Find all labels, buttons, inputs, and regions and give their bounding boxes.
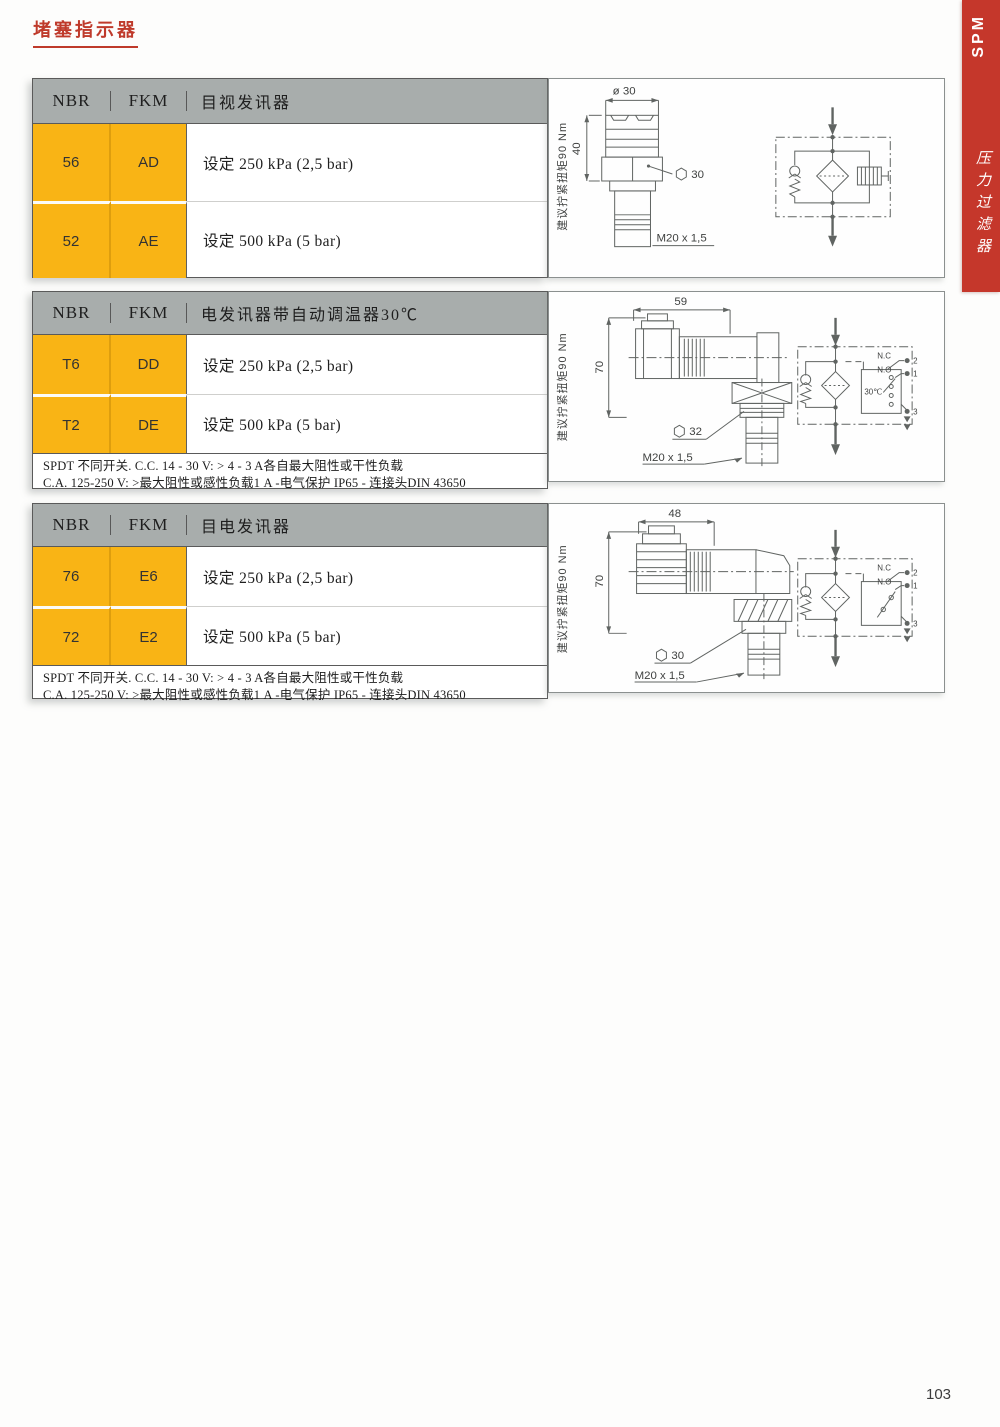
terminal-3-label: 3	[913, 619, 918, 628]
technical-drawing-electric-indicator: 建议拧紧扭矩90 Nm 59 70 32 M20 x 1,5 30℃ N.C N…	[549, 292, 944, 481]
side-tab-code: SPM	[970, 14, 988, 58]
cell-desc: 设定 500 kPa (5 bar)	[187, 606, 547, 665]
terminal-no-label: N.O	[877, 366, 891, 375]
terminal-3-label: 3	[913, 407, 918, 416]
cell-fkm: AD	[111, 124, 187, 201]
drawing-panel-visual-indicator: 建议拧紧扭矩90 Nm ø 30 40 30 M20 x 1,5	[548, 78, 945, 278]
col-header-fkm: FKM	[111, 91, 187, 111]
torque-label: 建议拧紧扭矩90 Nm	[555, 332, 569, 441]
hex-symbol	[674, 425, 684, 437]
terminal-nc-label: N.C	[877, 352, 891, 361]
side-tab-label: 压力过滤器	[972, 150, 993, 260]
cell-desc: 设定 250 kPa (2,5 bar)	[187, 547, 547, 606]
table-row: 72 E2 设定 500 kPa (5 bar)	[33, 606, 547, 665]
technical-drawing-visual-electric-indicator: 建议拧紧扭矩90 Nm 48 70 30 M20 x 1,5 N.C N.O 2…	[549, 504, 944, 692]
table-row: T6 DD 设定 250 kPa (2,5 bar)	[33, 335, 547, 394]
cell-nbr: 76	[33, 547, 111, 606]
page-number: 103	[926, 1386, 951, 1403]
spec-note-line1: SPDT 不同开关. C.C. 14 - 30 V: > 4 - 3 A各自最大…	[43, 670, 537, 687]
terminal-1-label: 1	[913, 582, 918, 591]
torque-label: 建议拧紧扭矩90 Nm	[555, 122, 569, 231]
col-header-type: 目视发讯器	[187, 89, 547, 113]
table-header-row: NBR FKM 目视发讯器	[33, 79, 547, 124]
dim-width-label: 59	[674, 296, 687, 308]
cell-nbr: T6	[33, 335, 111, 394]
torque-label: 建议拧紧扭矩90 Nm	[555, 544, 569, 653]
table-row: 52 AE 设定 500 kPa (5 bar)	[33, 201, 547, 278]
thermostat-label: 30℃	[864, 387, 882, 396]
spec-note-line2: C.A. 125-250 V: >最大阻性或感性负载1 A -电气保护 IP65…	[43, 475, 537, 492]
dim-height-label: 40	[571, 142, 583, 155]
drawing-panel-visual-electric-indicator: 建议拧紧扭矩90 Nm 48 70 30 M20 x 1,5 N.C N.O 2…	[548, 503, 945, 693]
table-electric-indicator-thermostat: NBR FKM 电发讯器带自动调温器30℃ T6 DD 设定 250 kPa (…	[32, 291, 548, 489]
thread-label: M20 x 1,5	[643, 452, 693, 464]
table-row: 76 E6 设定 250 kPa (2,5 bar)	[33, 547, 547, 606]
spec-note-line2: C.A. 125-250 V: >最大阻性或感性负载1 A -电气保护 IP65…	[43, 687, 537, 704]
dim-diameter-label: ø 30	[613, 85, 636, 97]
terminal-2-label: 2	[913, 569, 918, 578]
technical-drawing-visual-indicator: 建议拧紧扭矩90 Nm ø 30 40 30 M20 x 1,5	[549, 79, 944, 277]
terminal-1-label: 1	[913, 370, 918, 379]
spec-note-line1: SPDT 不同开关. C.C. 14 - 30 V: > 4 - 3 A各自最大…	[43, 458, 537, 475]
col-header-nbr: NBR	[33, 303, 111, 323]
table-row: T2 DE 设定 500 kPa (5 bar)	[33, 394, 547, 453]
col-header-type: 电发讯器带自动调温器30℃	[187, 301, 547, 325]
cell-desc: 设定 500 kPa (5 bar)	[187, 201, 547, 278]
col-header-nbr: NBR	[33, 515, 111, 535]
cell-nbr: 56	[33, 124, 111, 201]
hex-size-label: 32	[689, 426, 702, 438]
table-row: 56 AD 设定 250 kPa (2,5 bar)	[33, 124, 547, 201]
cell-fkm: AE	[111, 201, 187, 278]
dim-width-label: 48	[668, 508, 681, 520]
col-header-fkm: FKM	[111, 515, 187, 535]
cell-fkm: DD	[111, 335, 187, 394]
dim-height-label: 70	[594, 361, 606, 374]
col-header-fkm: FKM	[111, 303, 187, 323]
hex-size-label: 30	[691, 169, 704, 181]
table-visual-indicator: NBR FKM 目视发讯器 56 AD 设定 250 kPa (2,5 bar)…	[32, 78, 548, 278]
dim-height-label: 70	[594, 575, 606, 588]
hex-size-label: 30	[671, 650, 684, 662]
terminal-nc-label: N.C	[877, 564, 891, 573]
cell-fkm: E6	[111, 547, 187, 606]
terminal-no-label: N.O	[877, 578, 891, 587]
drawing-panel-electric-indicator: 建议拧紧扭矩90 Nm 59 70 32 M20 x 1,5 30℃ N.C N…	[548, 291, 945, 482]
table-header-row: NBR FKM 目电发讯器	[33, 504, 547, 547]
col-header-type: 目电发讯器	[187, 513, 547, 537]
cell-nbr: 52	[33, 201, 111, 278]
spec-note: SPDT 不同开关. C.C. 14 - 30 V: > 4 - 3 A各自最大…	[33, 665, 547, 706]
cell-nbr: T2	[33, 394, 111, 453]
table-header-row: NBR FKM 电发讯器带自动调温器30℃	[33, 292, 547, 335]
hex-symbol	[676, 168, 686, 180]
cell-desc: 设定 250 kPa (2,5 bar)	[187, 124, 547, 201]
col-header-nbr: NBR	[33, 91, 111, 111]
side-tab: SPM 压力过滤器	[962, 0, 1000, 292]
cell-desc: 设定 500 kPa (5 bar)	[187, 394, 547, 453]
cell-fkm: DE	[111, 394, 187, 453]
cell-nbr: 72	[33, 606, 111, 665]
spec-note: SPDT 不同开关. C.C. 14 - 30 V: > 4 - 3 A各自最大…	[33, 453, 547, 494]
cell-desc: 设定 250 kPa (2,5 bar)	[187, 335, 547, 394]
page-title: 堵塞指示器	[33, 16, 138, 48]
cell-fkm: E2	[111, 606, 187, 665]
hex-symbol	[656, 649, 666, 661]
table-visual-electric-indicator: NBR FKM 目电发讯器 76 E6 设定 250 kPa (2,5 bar)…	[32, 503, 548, 699]
thread-label: M20 x 1,5	[656, 233, 706, 245]
terminal-2-label: 2	[913, 357, 918, 366]
thread-label: M20 x 1,5	[635, 670, 685, 682]
